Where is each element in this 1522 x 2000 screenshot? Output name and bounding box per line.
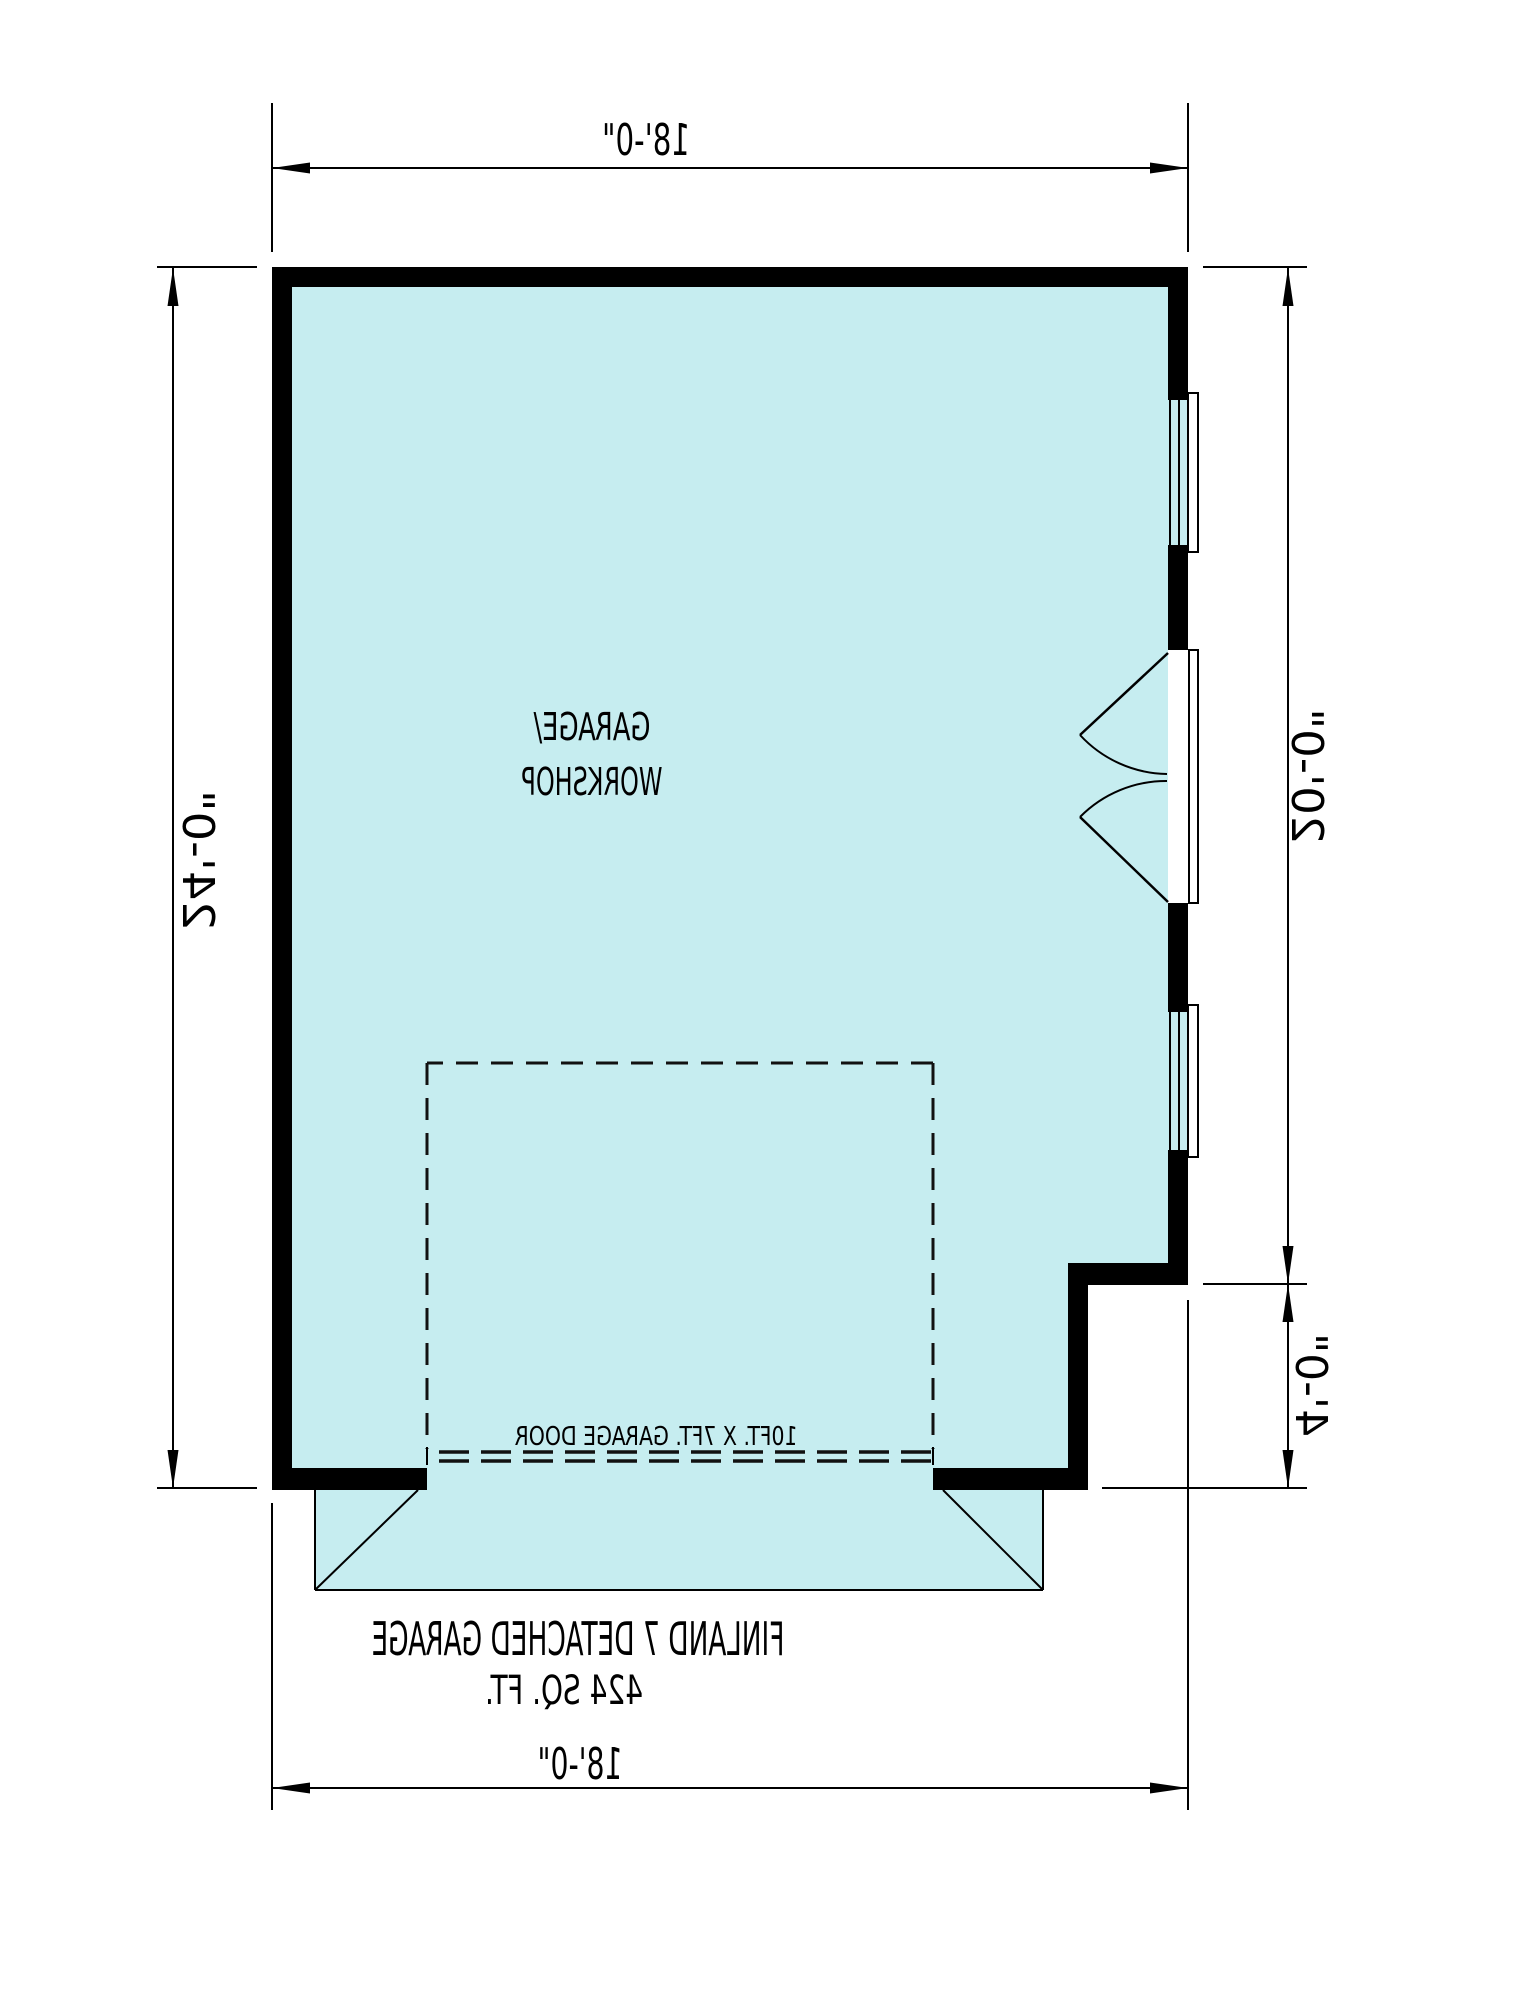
- dim-bottom-arrow-right: [272, 1783, 310, 1794]
- wall-notch-vertical: [1068, 1285, 1088, 1490]
- dim-side-lower-arrow-bottom: [1283, 1450, 1294, 1488]
- dim-side-upper-label: 20'-0": [1281, 709, 1332, 844]
- wall-bottom-left-of-door: [933, 1468, 1088, 1490]
- wall-right: [272, 267, 292, 1490]
- wall-left-seg-1: [1168, 267, 1188, 400]
- dim-top-arrow-right: [272, 163, 310, 174]
- wall-top: [272, 267, 1188, 287]
- window-lower-outer-frame: [1188, 1005, 1198, 1157]
- floor-plan-canvas: 18'-0" 24'-0" 20'-0": [0, 0, 1522, 2000]
- dim-side-lower-arrow-top: [1283, 1284, 1294, 1322]
- dim-side-upper: 20'-0": [1203, 267, 1332, 1284]
- window-upper-outer-frame: [1188, 393, 1198, 552]
- garage-door-label: 10FT. X 7FT. GARAGE DOOR: [515, 1422, 798, 1452]
- wall-left-seg-3: [1168, 903, 1188, 1012]
- driveway-apron-fill: [315, 1490, 1043, 1590]
- window-lower: [1168, 1005, 1198, 1157]
- dim-side-upper-arrow-top: [1283, 268, 1294, 306]
- wall-notch-horizontal: [1068, 1263, 1188, 1285]
- dim-side-upper-arrow-bottom: [1283, 1246, 1294, 1284]
- dim-side-total: 24'-0": [157, 267, 257, 1488]
- room-label-line-2: WORKSHOP: [522, 760, 663, 804]
- garage-opening-floor: [427, 1468, 933, 1490]
- wall-bottom-right-of-door: [272, 1468, 427, 1490]
- dim-bottom-arrow-left: [1150, 1783, 1188, 1794]
- dim-side-lower-label: 4'-0": [1285, 1333, 1336, 1437]
- plan-area-label: 424 SQ. FT.: [485, 1668, 643, 1714]
- dim-bottom-label: 18'-0": [538, 1739, 623, 1790]
- mirrored-plan-group: 18'-0" 24'-0" 20'-0": [157, 103, 1336, 1810]
- dim-top-arrow-left: [1150, 163, 1188, 174]
- dim-side-total-arrow-top: [168, 268, 179, 306]
- door-threshold: [1189, 650, 1198, 903]
- dim-top: 18'-0": [272, 103, 1188, 252]
- floor-plan-page: 18'-0" 24'-0" 20'-0": [0, 0, 1522, 2000]
- room-floor-fill: [292, 287, 1168, 1468]
- room-label-line-1: GARAGE/: [533, 705, 650, 749]
- dim-side-total-arrow-bottom: [168, 1450, 179, 1488]
- wall-left-seg-4: [1168, 1150, 1188, 1263]
- window-upper: [1168, 393, 1198, 552]
- dim-top-label: 18'-0": [602, 115, 690, 166]
- wall-left-seg-2: [1168, 545, 1188, 650]
- dim-side-total-label: 24'-0": [172, 790, 223, 930]
- plan-title: FINLAND 7 DETACHED GARAGE: [372, 1612, 785, 1666]
